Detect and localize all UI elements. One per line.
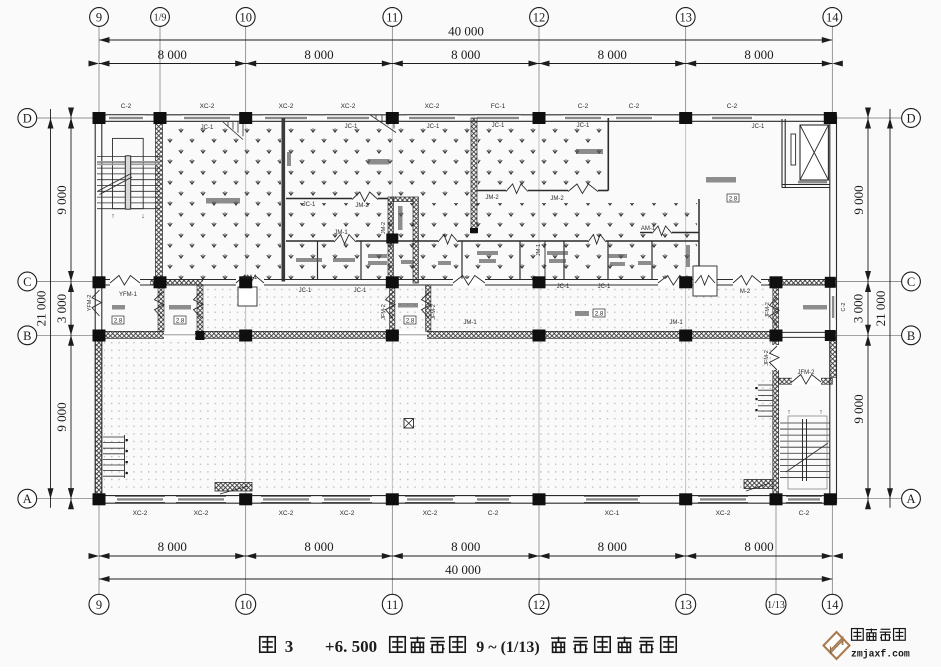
- svg-text:JM-2: JM-2: [550, 196, 564, 202]
- svg-text:C-2: C-2: [629, 103, 640, 110]
- svg-text:B: B: [907, 329, 915, 343]
- svg-text:YFM-1: YFM-1: [119, 292, 138, 298]
- svg-text:8 000: 8 000: [304, 47, 333, 62]
- svg-text:8 000: 8 000: [304, 539, 333, 554]
- svg-text:C-2: C-2: [727, 103, 738, 110]
- svg-text:2.8: 2.8: [595, 311, 604, 317]
- svg-text:9 000: 9 000: [851, 394, 866, 423]
- svg-text:C: C: [907, 275, 915, 289]
- svg-text:JM-1: JM-1: [334, 230, 348, 236]
- svg-text:12: 12: [533, 598, 546, 612]
- svg-text:JM-1: JM-1: [463, 320, 477, 326]
- svg-text:XC-1: XC-1: [605, 510, 620, 517]
- svg-text:3: 3: [285, 637, 294, 656]
- svg-text:JC-1: JC-1: [303, 202, 316, 208]
- svg-text:JFM-2: JFM-2: [765, 302, 771, 318]
- svg-text:XC-2: XC-2: [425, 103, 440, 110]
- svg-text:JC-1: JC-1: [577, 123, 590, 129]
- svg-text:8 000: 8 000: [744, 539, 773, 554]
- svg-text:JM-2: JM-2: [381, 222, 387, 234]
- svg-text:JFM-2: JFM-2: [431, 304, 437, 320]
- svg-text:13: 13: [679, 11, 692, 25]
- svg-text:C-2: C-2: [488, 510, 499, 517]
- svg-text:C-2: C-2: [841, 303, 847, 312]
- svg-text:JC-1: JC-1: [427, 124, 440, 130]
- svg-text:YFM-2: YFM-2: [87, 295, 93, 312]
- svg-text:8 000: 8 000: [451, 47, 480, 62]
- svg-text:D: D: [23, 112, 32, 126]
- svg-text:↑: ↑: [819, 409, 823, 416]
- svg-text:9 ~ (1/13): 9 ~ (1/13): [476, 639, 539, 656]
- svg-text:8 000: 8 000: [744, 47, 773, 62]
- svg-text:2.8: 2.8: [729, 196, 738, 202]
- svg-text:3 000: 3 000: [851, 294, 866, 323]
- svg-text:JFM-2: JFM-2: [764, 350, 770, 366]
- svg-text:13: 13: [679, 598, 692, 612]
- svg-text:AM-1: AM-1: [243, 275, 258, 281]
- svg-text:8 000: 8 000: [158, 539, 187, 554]
- svg-text:40 000: 40 000: [445, 562, 481, 577]
- svg-text:A: A: [23, 492, 32, 506]
- svg-text:8 000: 8 000: [598, 539, 627, 554]
- svg-text:2.8: 2.8: [114, 318, 123, 324]
- svg-text:1/13: 1/13: [767, 600, 785, 611]
- svg-text:XC-2: XC-2: [194, 510, 209, 517]
- svg-text:+6. 500: +6. 500: [325, 637, 377, 656]
- svg-text:C: C: [23, 275, 31, 289]
- svg-text:8 000: 8 000: [158, 47, 187, 62]
- svg-text:2.8: 2.8: [406, 318, 415, 324]
- svg-text:JC-1: JC-1: [492, 123, 505, 129]
- svg-text:2.8: 2.8: [176, 318, 185, 324]
- svg-text:C-2: C-2: [121, 103, 132, 110]
- svg-text:D: D: [906, 112, 915, 126]
- svg-text:XC-2: XC-2: [340, 510, 355, 517]
- svg-text:M-2: M-2: [740, 289, 751, 295]
- svg-text:C-2: C-2: [578, 103, 589, 110]
- svg-text:21 000: 21 000: [34, 291, 49, 327]
- svg-text:JM-1: JM-1: [669, 320, 683, 326]
- svg-text:11: 11: [386, 598, 398, 612]
- svg-text:9 000: 9 000: [54, 402, 69, 431]
- svg-text:14: 14: [826, 598, 839, 612]
- svg-text:JM-2: JM-2: [485, 195, 499, 201]
- svg-text:JC-1: JC-1: [557, 284, 570, 290]
- svg-text:9: 9: [96, 11, 102, 25]
- svg-text:zmjaxf.com: zmjaxf.com: [851, 649, 910, 660]
- svg-text:40 000: 40 000: [448, 24, 484, 39]
- svg-text:XC-2: XC-2: [279, 103, 294, 110]
- svg-text:3 000: 3 000: [54, 294, 69, 323]
- svg-text:JC-1: JC-1: [201, 125, 214, 131]
- svg-text:FC-1: FC-1: [491, 103, 506, 110]
- svg-text:JC-1: JC-1: [354, 288, 367, 294]
- svg-text:8 000: 8 000: [451, 539, 480, 554]
- svg-text:AM-1: AM-1: [641, 226, 656, 232]
- svg-text:↓: ↓: [141, 213, 145, 220]
- svg-text:9 000: 9 000: [54, 185, 69, 214]
- svg-text:9: 9: [96, 598, 102, 612]
- svg-text:8 000: 8 000: [598, 47, 627, 62]
- svg-text:14: 14: [826, 11, 839, 25]
- svg-text:XC-2: XC-2: [716, 510, 731, 517]
- svg-text:XC-2: XC-2: [200, 103, 215, 110]
- svg-text:JC-1: JC-1: [299, 288, 312, 294]
- svg-text:10: 10: [239, 11, 252, 25]
- svg-text:11: 11: [386, 11, 398, 25]
- svg-text:9 000: 9 000: [851, 185, 866, 214]
- svg-text:JC-1: JC-1: [752, 124, 765, 130]
- svg-text:JC-1: JC-1: [345, 124, 358, 130]
- svg-text:XC-2: XC-2: [279, 510, 294, 517]
- svg-text:B: B: [23, 329, 31, 343]
- svg-text:↑: ↑: [787, 409, 791, 416]
- svg-text:XC-2: XC-2: [423, 510, 438, 517]
- svg-text:XC-2: XC-2: [133, 510, 148, 517]
- svg-text:A: A: [906, 492, 915, 506]
- svg-text:JFM-2: JFM-2: [381, 304, 387, 320]
- svg-text:JM-2: JM-2: [355, 203, 369, 209]
- svg-text:C-2: C-2: [799, 510, 810, 517]
- svg-text:21 000: 21 000: [873, 291, 888, 327]
- svg-text:12: 12: [533, 11, 546, 25]
- svg-text:1/9: 1/9: [154, 13, 167, 24]
- svg-text:XC-2: XC-2: [341, 103, 356, 110]
- svg-text:JFM-2: JFM-2: [798, 370, 816, 376]
- svg-text:JC-1: JC-1: [598, 284, 611, 290]
- svg-text:↑: ↑: [111, 213, 115, 220]
- svg-text:10: 10: [239, 598, 252, 612]
- svg-text:JM-1: JM-1: [536, 244, 542, 256]
